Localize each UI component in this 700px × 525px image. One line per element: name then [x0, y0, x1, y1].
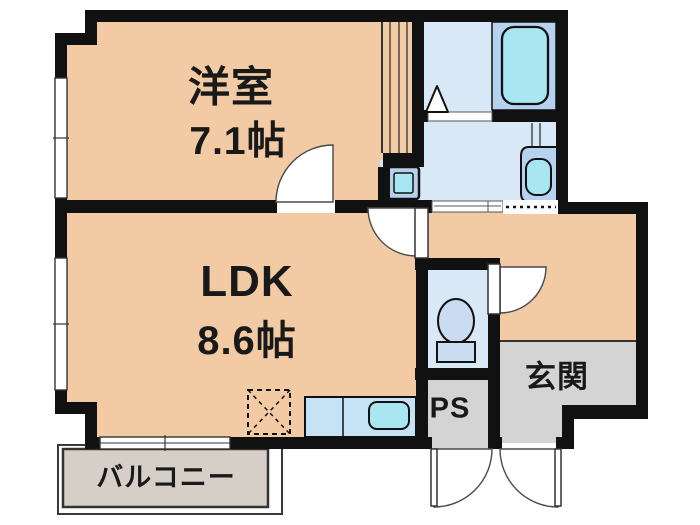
western-room-size: 7.1帖 — [189, 110, 286, 166]
toilet-tank — [437, 342, 475, 362]
wash-basin — [526, 159, 551, 195]
washing-machine-pan-drain — [394, 173, 413, 193]
bathroom-door-opening — [428, 112, 492, 121]
ldk-label: LDK — [200, 257, 293, 307]
western-room-label: 洋室 — [188, 54, 274, 115]
kitchen-sink — [369, 402, 409, 429]
bathtub — [502, 27, 548, 104]
window-ldk-left — [53, 258, 69, 390]
balcony-label: バルコニー — [96, 456, 235, 495]
pipe-space-label: PS — [430, 393, 471, 426]
floorplan: 洋室 7.1帖 LDK 8.6帖 バルコニー 玄関 PS — [0, 0, 700, 525]
window-western-left — [53, 78, 69, 198]
entrance-door — [500, 449, 561, 507]
window-ldk-balcony — [100, 435, 230, 451]
toilet-bowl — [438, 299, 474, 343]
floorplan-drawing — [0, 0, 700, 525]
entrance-label: 玄関 — [525, 352, 589, 397]
ldk-size: 8.6帖 — [197, 308, 297, 366]
washroom-sliding-door — [432, 201, 503, 212]
ps-door — [431, 449, 492, 507]
